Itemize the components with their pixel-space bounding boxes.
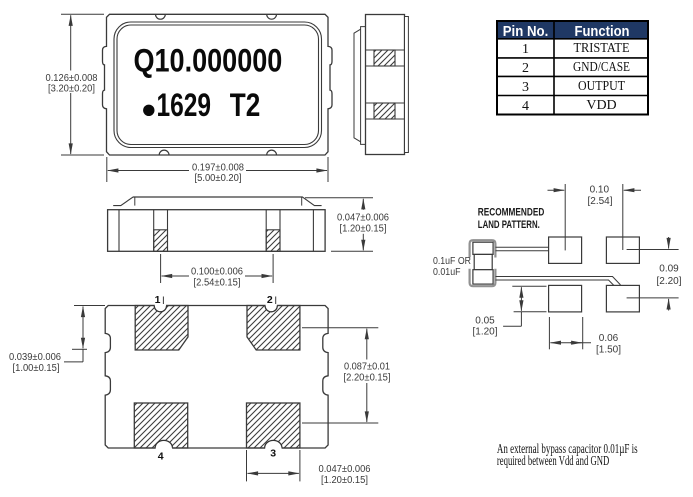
svg-text:0.06: 0.06 [599,333,619,344]
svg-text:OUTPUT: OUTPUT [578,79,625,94]
svg-text:T2: T2 [230,87,260,123]
svg-text:LAND PATTERN.: LAND PATTERN. [478,219,540,231]
svg-text:0.05: 0.05 [475,315,495,326]
svg-text:[1.20±0.15]: [1.20±0.15] [340,224,387,235]
svg-text:TRISTATE: TRISTATE [574,41,630,56]
svg-text:[5.00±0.20]: [5.00±0.20] [195,173,242,184]
svg-text:GND/CASE: GND/CASE [573,60,630,75]
svg-text:Q10.000000: Q10.000000 [134,43,283,79]
svg-text:required between Vdd and GND: required between Vdd and GND [497,453,609,468]
svg-text:[2.20]: [2.20] [656,276,681,287]
svg-text:Pin No.: Pin No. [503,24,549,40]
svg-text:1629: 1629 [157,87,212,123]
svg-text:[2.54±0.15]: [2.54±0.15] [194,277,241,288]
svg-text:[1.20]: [1.20] [472,327,497,338]
svg-text:0.10: 0.10 [590,184,610,195]
svg-text:0.047±0.006: 0.047±0.006 [337,212,389,223]
svg-text:[1.20±0.15]: [1.20±0.15] [321,475,368,486]
svg-text:RECOMMENDED: RECOMMENDED [478,206,545,218]
svg-text:1: 1 [522,42,529,57]
svg-text:3: 3 [522,80,529,95]
svg-text:[3.20±0.20]: [3.20±0.20] [48,83,95,94]
svg-text:[2.54]: [2.54] [587,196,612,207]
svg-text:[1.00±0.15]: [1.00±0.15] [13,363,60,374]
svg-text:0.047±0.006: 0.047±0.006 [319,464,371,475]
svg-text:4: 4 [158,451,164,463]
svg-text:[2.20±0.15]: [2.20±0.15] [344,373,391,384]
svg-text:0.09: 0.09 [659,263,679,274]
svg-text:0.039±0.006: 0.039±0.006 [9,352,61,363]
svg-text:Function: Function [575,24,630,40]
svg-text:0.087±0.01: 0.087±0.01 [344,361,390,372]
svg-text:3: 3 [270,448,276,460]
svg-text:[1.50]: [1.50] [596,344,621,355]
svg-text:0.01uF: 0.01uF [433,267,461,278]
svg-text:0.100±0.006: 0.100±0.006 [191,267,243,278]
svg-text:2: 2 [522,61,529,76]
svg-text:2: 2 [267,294,273,306]
svg-text:VDD: VDD [586,98,616,113]
svg-text:4: 4 [522,99,529,114]
svg-text:1: 1 [155,294,161,306]
svg-text:0.1uF OR: 0.1uF OR [433,256,471,267]
